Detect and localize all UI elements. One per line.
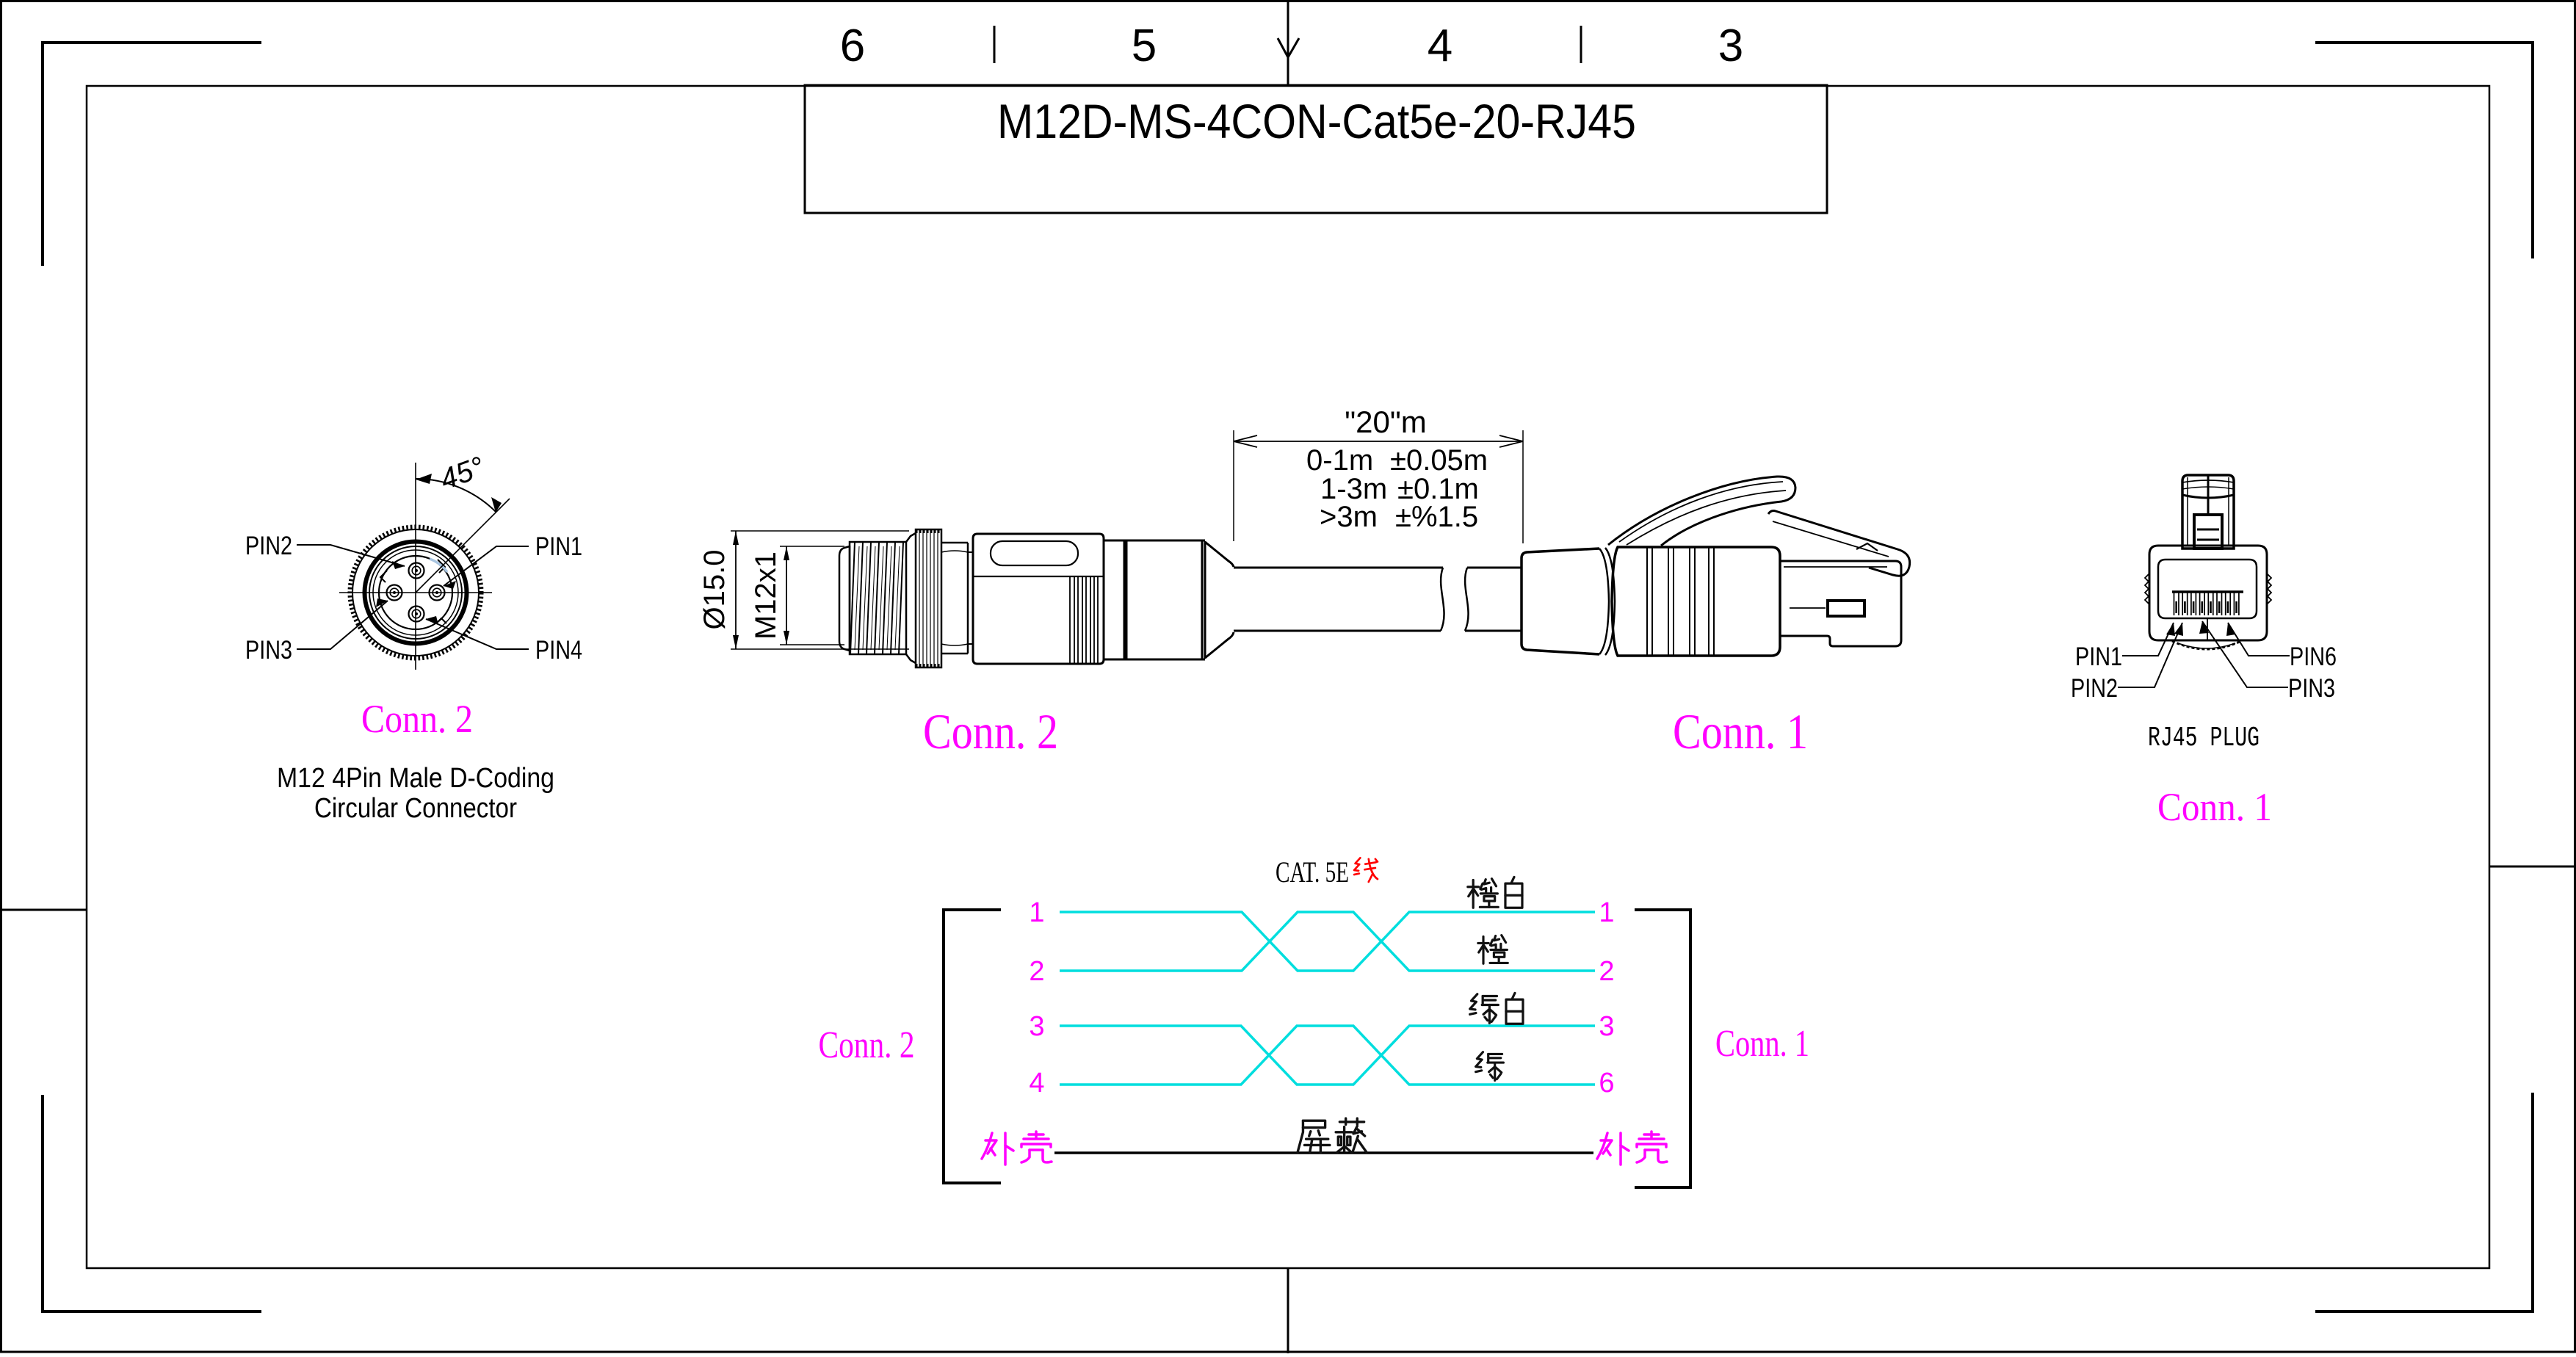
svg-text:PIN1: PIN1	[2075, 643, 2122, 671]
svg-text:Conn. 1: Conn. 1	[2157, 785, 2272, 829]
svg-text:Conn. 2: Conn. 2	[361, 697, 473, 741]
svg-text:Conn. 1: Conn. 1	[1673, 703, 1808, 759]
svg-text:M12D-MS-4CON-Cat5e-20-RJ45: M12D-MS-4CON-Cat5e-20-RJ45	[997, 94, 1636, 148]
svg-text:PIN2: PIN2	[2071, 674, 2118, 703]
svg-text:5: 5	[1132, 21, 1157, 71]
svg-text:PIN4: PIN4	[535, 636, 582, 665]
svg-text:Conn. 1: Conn. 1	[1715, 1023, 1809, 1065]
svg-text:PIN3: PIN3	[2288, 674, 2335, 703]
svg-text:±%1.5: ±%1.5	[1395, 501, 1478, 533]
svg-text:Circular Connector: Circular Connector	[314, 793, 517, 824]
svg-text:±0.05m: ±0.05m	[1390, 444, 1488, 477]
svg-text:M12x1: M12x1	[750, 551, 782, 640]
svg-text:3: 3	[1029, 1011, 1044, 1042]
svg-text:CAT. 5E: CAT. 5E	[1276, 855, 1349, 889]
svg-text:6: 6	[840, 21, 865, 71]
svg-text:1: 1	[1029, 897, 1044, 928]
svg-text:4: 4	[1428, 21, 1452, 71]
svg-text:3: 3	[1599, 1011, 1614, 1042]
svg-text:PIN1: PIN1	[535, 532, 582, 561]
svg-text:Ø15.0: Ø15.0	[698, 550, 731, 630]
svg-text:2: 2	[1029, 956, 1044, 987]
svg-text:Conn. 2: Conn. 2	[819, 1024, 915, 1066]
svg-text:M12 4Pin Male D-Coding: M12 4Pin Male D-Coding	[277, 763, 554, 794]
svg-text:4: 4	[1029, 1068, 1044, 1099]
svg-text:PIN6: PIN6	[2290, 643, 2337, 671]
svg-text:>3m: >3m	[1320, 501, 1378, 533]
svg-text:RJ45 PLUG: RJ45 PLUG	[2148, 723, 2260, 754]
svg-text:PIN3: PIN3	[245, 636, 292, 665]
svg-text:Conn. 2: Conn. 2	[923, 703, 1058, 759]
svg-text:3: 3	[1718, 21, 1743, 71]
svg-text:PIN2: PIN2	[245, 532, 292, 560]
svg-text:1: 1	[1599, 897, 1614, 928]
svg-text:6: 6	[1599, 1068, 1614, 1099]
svg-text:2: 2	[1599, 956, 1614, 987]
svg-text:0-1m: 0-1m	[1306, 444, 1373, 477]
svg-text:"20"m: "20"m	[1345, 405, 1427, 439]
